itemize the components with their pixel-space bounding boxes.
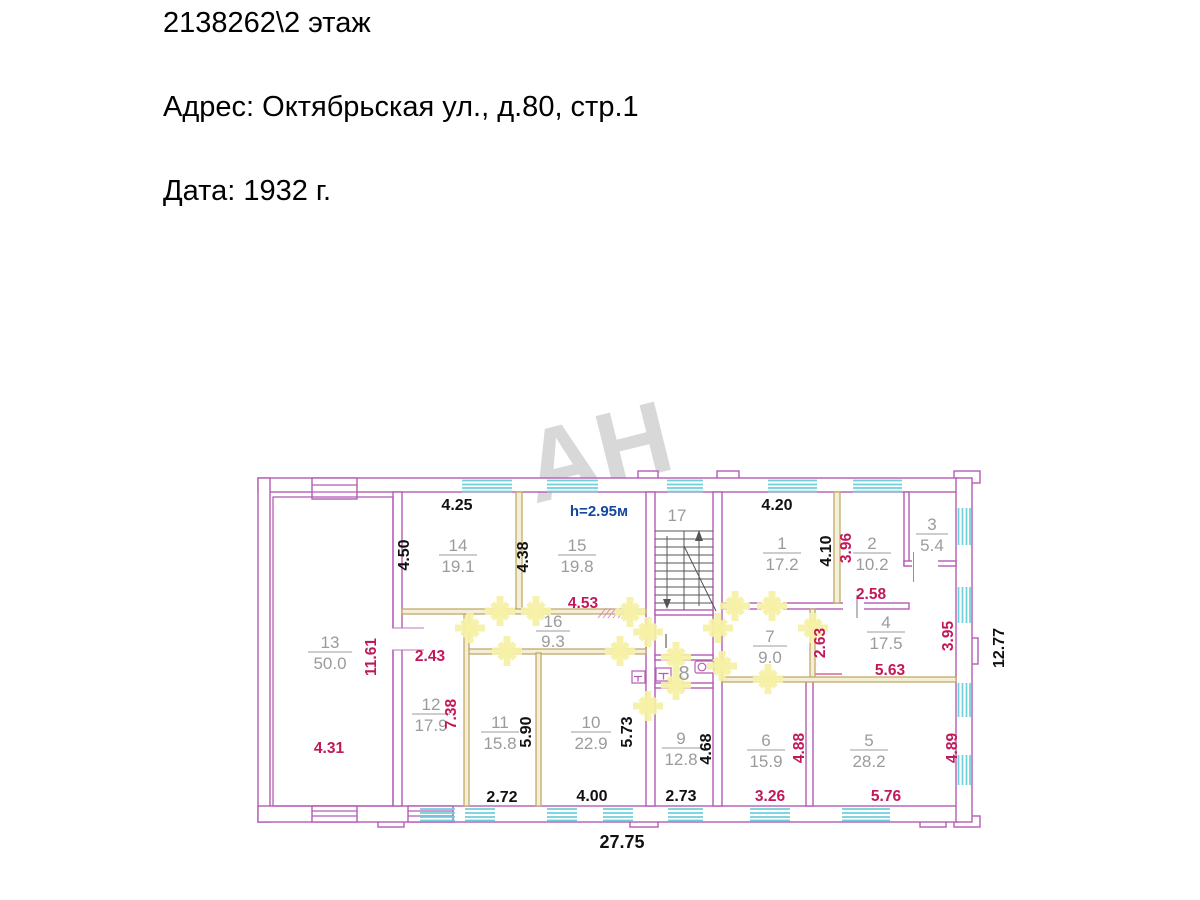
- svg-text:13: 13: [321, 633, 340, 652]
- dim-room12-height: 7.38: [443, 699, 460, 730]
- room-label: 210.2: [853, 534, 891, 574]
- dim-overall-depth: 12.77: [991, 628, 1008, 668]
- room-label: 79.0: [753, 627, 787, 667]
- room-label: 1419.1: [439, 536, 477, 576]
- dim-room12-width: 2.43: [415, 648, 446, 665]
- dim-room11-width: 2.72: [486, 789, 517, 806]
- room-label: 35.4: [916, 515, 948, 555]
- svg-text:7: 7: [765, 627, 774, 646]
- svg-text:16: 16: [544, 612, 563, 631]
- hall-label: I: [663, 631, 669, 653]
- dim-room5-height: 4.89: [944, 733, 961, 764]
- svg-text:10.2: 10.2: [855, 555, 888, 574]
- svg-text:19.8: 19.8: [560, 557, 593, 576]
- ceiling-height-label: h=2.95м: [570, 503, 628, 520]
- room-label: 1519.8: [558, 536, 596, 576]
- svg-text:11: 11: [491, 713, 509, 732]
- svg-text:22.9: 22.9: [574, 734, 607, 753]
- dim-room4-height-left: 2.63: [812, 628, 829, 659]
- dim-room10-height: 5.73: [619, 716, 636, 747]
- dim-overall-width: 27.75: [599, 832, 644, 852]
- stairwell-label: 17: [668, 506, 687, 525]
- dim-room9-height: 4.68: [698, 733, 715, 764]
- wc-label: 8: [678, 663, 689, 685]
- room-label: 912.8: [662, 729, 700, 769]
- dim-room9-width: 2.73: [665, 788, 696, 805]
- dim-room1-width: 4.20: [761, 497, 792, 514]
- svg-text:9.0: 9.0: [758, 648, 782, 667]
- svg-text:9: 9: [676, 729, 685, 748]
- floor-plan-page: 2138262\2 этаж Адрес: Октябрьская ул., д…: [0, 0, 1200, 900]
- dim-room4-height-right: 3.95: [940, 621, 957, 652]
- room-label: 528.2: [850, 731, 888, 771]
- dim-room14-width: 4.25: [441, 497, 472, 514]
- svg-text:5: 5: [864, 731, 873, 750]
- room-label: 117.2: [763, 534, 801, 574]
- svg-text:28.2: 28.2: [852, 752, 885, 771]
- dim-room11-height: 5.90: [518, 716, 535, 747]
- svg-text:19.1: 19.1: [441, 557, 474, 576]
- svg-text:14: 14: [449, 536, 468, 555]
- svg-text:6: 6: [761, 731, 770, 750]
- dim-room10-width: 4.00: [576, 788, 607, 805]
- dim-room6-height: 4.88: [791, 733, 808, 764]
- dim-room5-width: 5.76: [871, 788, 902, 805]
- dim-room14-height: 4.50: [396, 539, 413, 570]
- dim-corridor-width: 4.53: [568, 595, 599, 612]
- dim-room2-height: 3.96: [838, 533, 855, 564]
- dim-room13-width: 4.31: [314, 740, 345, 757]
- room-label: 615.9: [747, 731, 785, 771]
- svg-text:15: 15: [568, 536, 587, 555]
- svg-text:17.2: 17.2: [765, 555, 798, 574]
- svg-text:15.9: 15.9: [749, 752, 782, 771]
- room-label: 417.5: [867, 613, 905, 653]
- svg-text:12.8: 12.8: [664, 750, 697, 769]
- svg-text:3: 3: [927, 515, 936, 534]
- floor-plan-drawing: АН: [0, 0, 1200, 900]
- room-label: 1022.9: [571, 713, 611, 753]
- svg-text:4: 4: [881, 613, 890, 632]
- room-label: 1115.8: [481, 713, 519, 753]
- svg-text:2: 2: [867, 534, 876, 553]
- svg-text:10: 10: [582, 713, 601, 732]
- svg-text:9.3: 9.3: [541, 632, 565, 651]
- svg-text:15.8: 15.8: [483, 734, 516, 753]
- dim-room1-height: 4.10: [818, 535, 835, 566]
- staircase: [655, 530, 716, 611]
- dim-room4-width: 5.63: [875, 662, 906, 679]
- svg-text:50.0: 50.0: [313, 654, 346, 673]
- room-label: 1350.0: [308, 633, 352, 673]
- svg-text:12: 12: [422, 695, 441, 714]
- svg-text:1: 1: [777, 534, 786, 553]
- svg-text:5.4: 5.4: [920, 536, 944, 555]
- dim-room13-height: 11.61: [363, 638, 380, 676]
- dim-room15-height: 4.38: [515, 541, 532, 572]
- dim-room6-width: 3.26: [755, 788, 786, 805]
- dim-room2-width: 2.58: [856, 586, 887, 603]
- svg-text:17.5: 17.5: [869, 634, 902, 653]
